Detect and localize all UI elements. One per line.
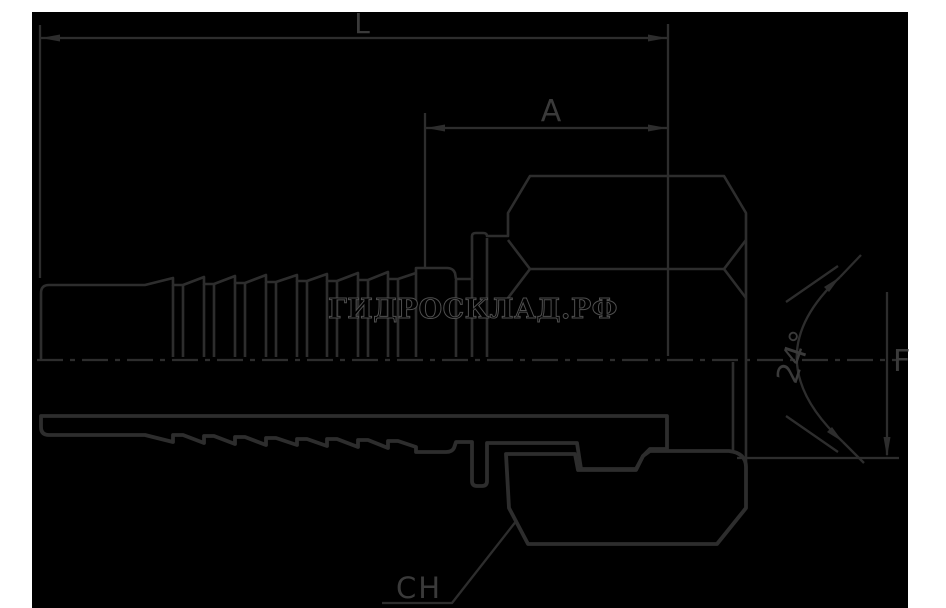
dim-label-A: A [541,94,562,129]
dim-label-CH: CH [396,571,442,605]
watermark-text: ГИДРОСКЛАД.РФ [328,294,618,325]
technical-drawing: L A F 24° CH ГИДРОСКЛАД.РФ [0,0,946,608]
dim-label-L: L [354,7,370,40]
page: L A F 24° CH ГИДРОСКЛАД.РФ [0,0,946,608]
dim-label-F: F [893,344,910,379]
